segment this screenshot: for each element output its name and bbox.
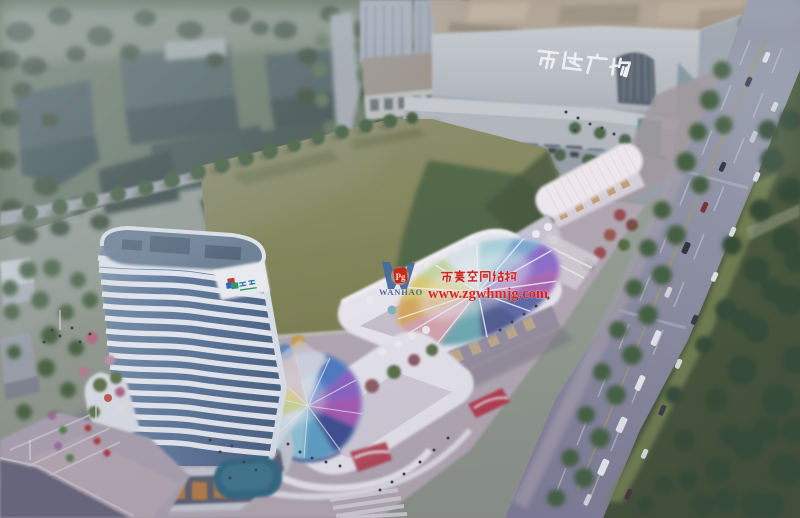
svg-text:Pg: Pg — [396, 272, 406, 282]
svg-text:WANHAO: WANHAO — [379, 287, 423, 297]
svg-text:www.zgwhmjg.com: www.zgwhmjg.com — [428, 286, 548, 302]
